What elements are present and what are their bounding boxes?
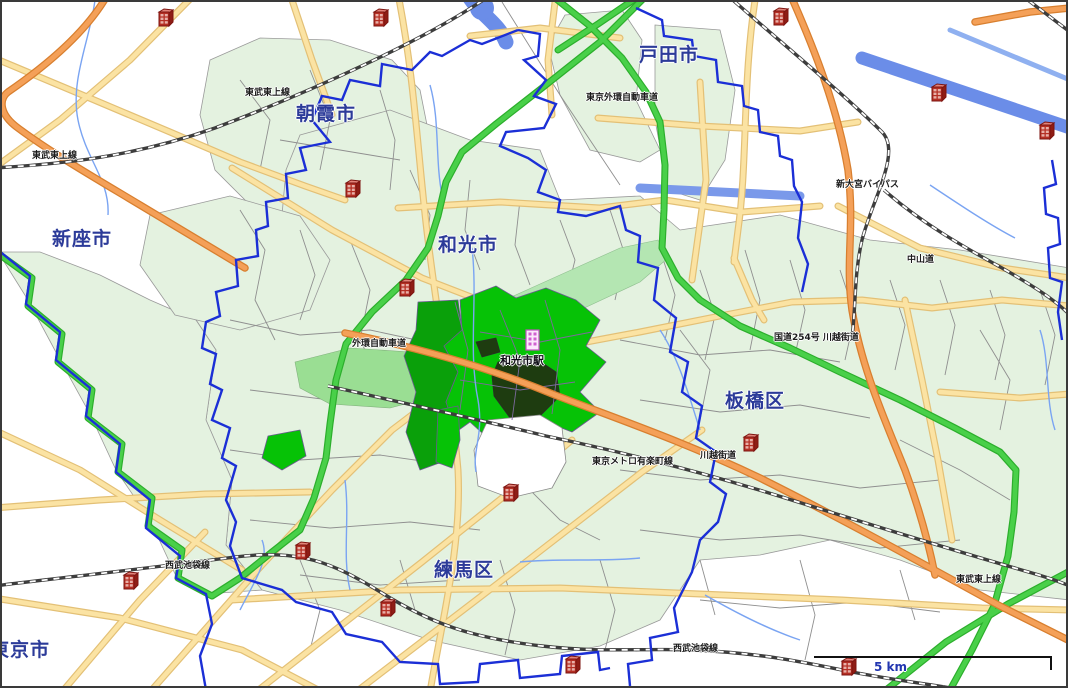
building-icon (157, 7, 175, 28)
scale-bar-tick (1050, 656, 1052, 670)
building-icon (840, 656, 858, 677)
building-icon (772, 6, 790, 27)
building-icon (564, 654, 582, 675)
building-icon (344, 178, 362, 199)
building-icon (930, 82, 948, 103)
building-icon (1038, 120, 1056, 141)
building-icon (372, 7, 390, 28)
building-icon (742, 432, 760, 453)
building-icon (122, 570, 140, 591)
map-canvas: 戸田市 朝霞市 和光市 新座市 板橋区 練馬区 東京市 和光市駅 東武東上線 東… (0, 0, 1068, 688)
building-icon (502, 482, 520, 503)
city-hall-icon (524, 328, 542, 349)
building-icon (398, 277, 416, 298)
scale-bar-line (814, 656, 1052, 658)
building-icon (379, 597, 397, 618)
building-icon (294, 540, 312, 561)
